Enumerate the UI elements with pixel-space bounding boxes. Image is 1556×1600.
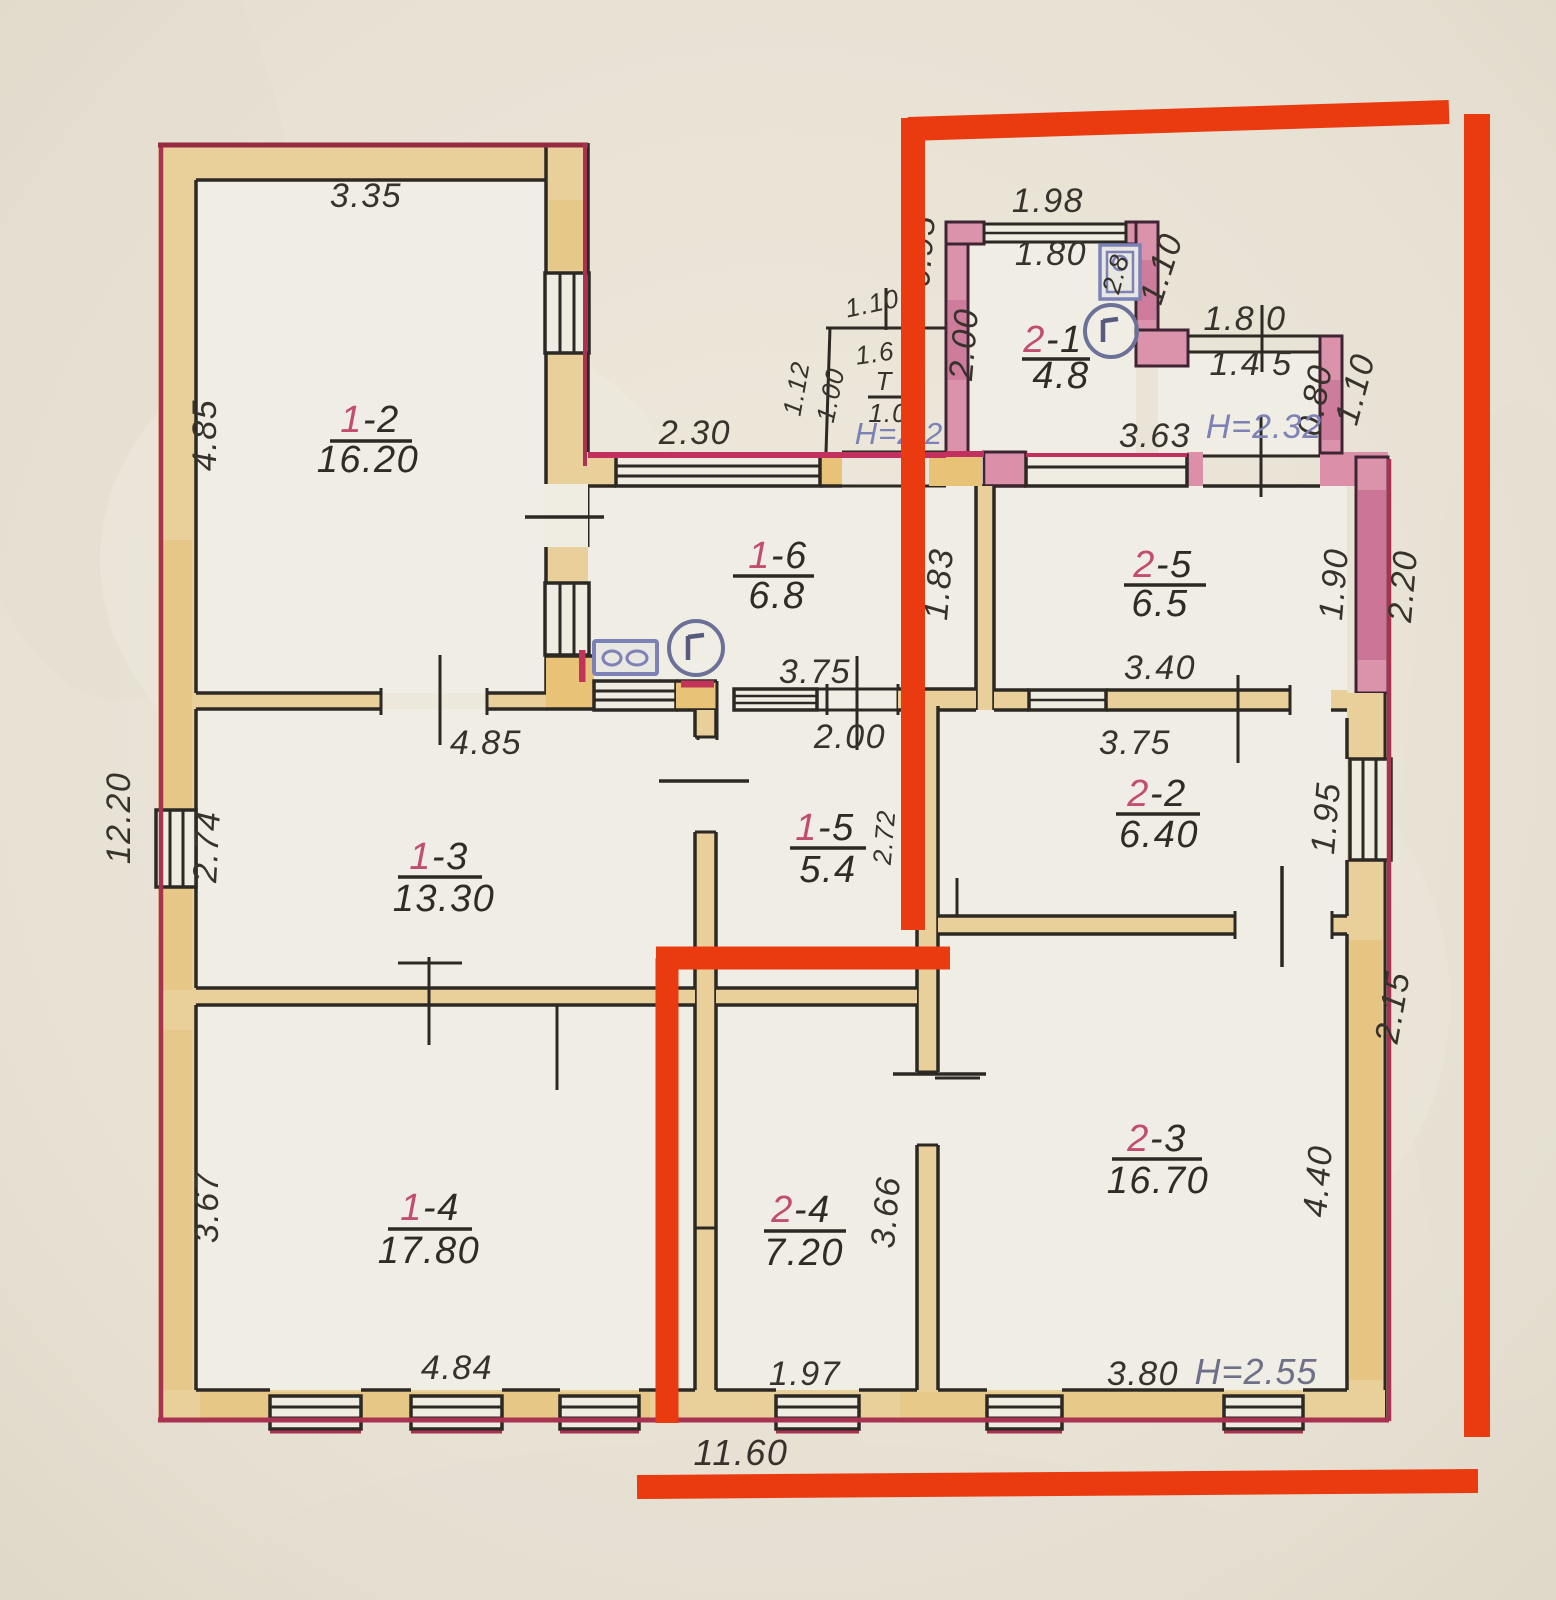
svg-text:4.85: 4.85 (450, 724, 522, 762)
svg-text:4.85: 4.85 (186, 399, 224, 471)
svg-text:1.80: 1.80 (1015, 235, 1087, 273)
svg-text:2.30: 2.30 (658, 414, 731, 452)
svg-text:16.70: 16.70 (1107, 1160, 1210, 1202)
svg-text:3.67: 3.67 (188, 1171, 226, 1243)
svg-text:1-6: 1-6 (748, 535, 807, 577)
svg-text:3.63: 3.63 (1119, 417, 1191, 455)
svg-text:4.84: 4.84 (421, 1349, 493, 1387)
svg-text:1.8 0: 1.8 0 (1203, 300, 1286, 338)
svg-text:6.40: 6.40 (1119, 814, 1199, 856)
svg-text:1.90: 1.90 (1312, 546, 1356, 621)
svg-text:1-4: 1-4 (400, 1187, 459, 1229)
svg-text:2.20: 2.20 (1381, 548, 1425, 624)
svg-text:H=2.2: H=2.2 (855, 416, 944, 451)
svg-text:1-5: 1-5 (795, 807, 854, 849)
svg-text:1-2: 1-2 (340, 399, 399, 441)
svg-text:1.4 5: 1.4 5 (1209, 345, 1292, 383)
svg-text:2-5: 2-5 (1132, 544, 1192, 586)
svg-text:2.74: 2.74 (186, 809, 228, 884)
svg-text:17.80: 17.80 (378, 1230, 481, 1272)
svg-text:11.60: 11.60 (694, 1432, 789, 1473)
svg-text:H=2.55: H=2.55 (1194, 1351, 1317, 1392)
svg-text:2-2: 2-2 (1126, 773, 1186, 815)
svg-text:2.00: 2.00 (813, 718, 886, 756)
svg-text:3.75: 3.75 (779, 653, 851, 691)
svg-text:16.20: 16.20 (317, 439, 420, 481)
svg-text:6.5: 6.5 (1131, 583, 1188, 625)
svg-text:2-4: 2-4 (770, 1189, 830, 1231)
svg-text:5.4: 5.4 (799, 849, 856, 891)
svg-text:4.40: 4.40 (1296, 1143, 1340, 1218)
svg-text:3.66: 3.66 (864, 1174, 908, 1249)
svg-text:2.00: 2.00 (942, 306, 986, 382)
svg-text:H=2.32: H=2.32 (1206, 408, 1323, 446)
svg-text:1.95: 1.95 (1304, 780, 1348, 855)
svg-text:12.20: 12.20 (100, 772, 138, 865)
svg-text:2.72: 2.72 (867, 809, 902, 867)
svg-text:T: T (876, 366, 894, 396)
svg-text:3.75: 3.75 (1099, 724, 1171, 762)
svg-text:3.80: 3.80 (1107, 1355, 1179, 1393)
svg-text:3.40: 3.40 (1124, 649, 1196, 687)
svg-text:3.35: 3.35 (330, 177, 402, 215)
svg-text:1-3: 1-3 (409, 836, 468, 878)
svg-text:7.20: 7.20 (764, 1232, 844, 1274)
svg-text:4.8: 4.8 (1032, 355, 1089, 397)
svg-text:1.98: 1.98 (1012, 182, 1084, 220)
svg-text:13.30: 13.30 (393, 878, 496, 920)
svg-text:2-3: 2-3 (1126, 1118, 1186, 1160)
svg-text:6.8: 6.8 (748, 575, 805, 617)
svg-text:1.97: 1.97 (769, 1355, 841, 1393)
